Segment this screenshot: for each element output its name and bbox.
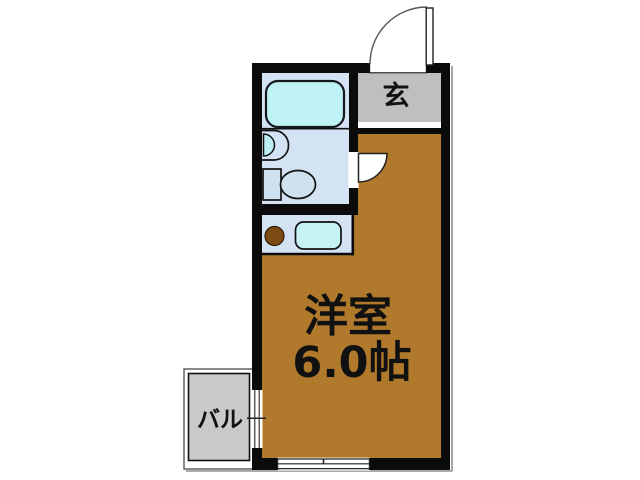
entrance-door-leaf [426, 8, 433, 65]
kitchen-sink [296, 222, 342, 249]
balcony-window-opening [252, 390, 263, 448]
floor-plan-canvas: 玄 洋室 6.0帖 バル [0, 0, 640, 480]
wall-bathroom-bottom [252, 204, 358, 215]
floor-plan-drawing: 玄 洋室 6.0帖 バル [0, 0, 640, 480]
wall-right [441, 63, 450, 470]
toilet-bowl [281, 171, 316, 199]
entrance-label: 玄 [383, 80, 410, 112]
entrance-door-opening [369, 63, 427, 74]
western-room-label: 洋室 [304, 291, 392, 342]
bathroom-door-opening [348, 152, 358, 188]
kitchen-burner [265, 227, 284, 246]
western-room-size-label: 6.0帖 [292, 338, 411, 388]
entrance-door-swing-arc [370, 7, 427, 64]
wall-left-upper [252, 63, 262, 390]
entrance-step-edge [351, 128, 442, 134]
entrance-step [354, 122, 442, 129]
balcony-label: バル [197, 407, 243, 433]
wall-bottom-left [252, 458, 277, 470]
bathtub [266, 81, 344, 127]
wall-bathroom-upper [349, 63, 358, 152]
wall-bottom-right [370, 458, 450, 470]
toilet-tank [263, 169, 281, 200]
